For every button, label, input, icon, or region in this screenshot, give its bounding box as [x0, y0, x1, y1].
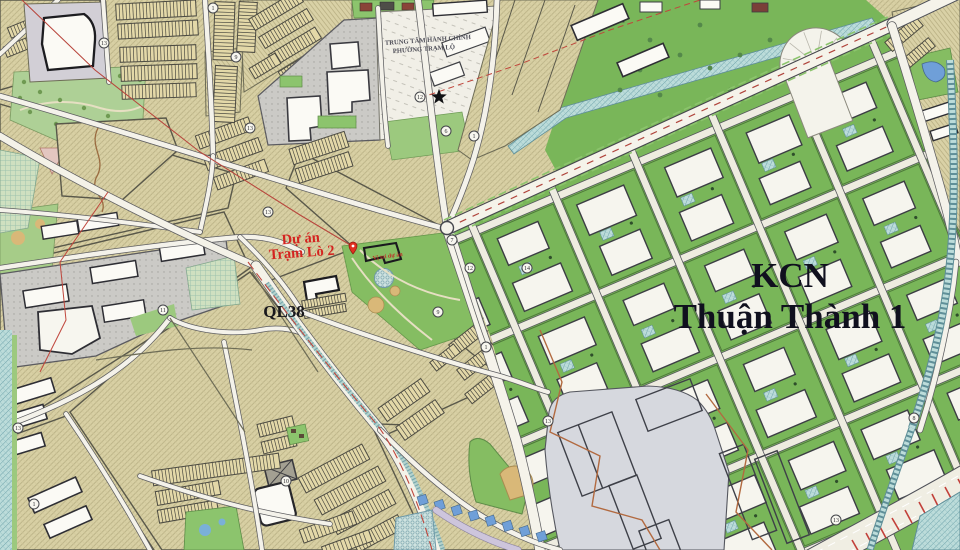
svg-text:13: 13 [545, 419, 551, 425]
svg-text:1: 1 [485, 345, 488, 351]
svg-text:9: 9 [437, 310, 440, 316]
svg-text:13: 13 [15, 426, 21, 432]
svg-text:1: 1 [33, 502, 36, 508]
svg-text:11: 11 [160, 308, 166, 314]
svg-text:13: 13 [247, 126, 253, 132]
svg-text:13: 13 [265, 210, 271, 216]
svg-text:14: 14 [524, 266, 530, 272]
svg-text:13: 13 [101, 41, 107, 47]
svg-text:9: 9 [235, 55, 238, 61]
svg-text:Thuận Thành 1: Thuận Thành 1 [674, 297, 907, 336]
svg-text:QL38: QL38 [263, 302, 305, 321]
svg-text:12: 12 [467, 266, 473, 272]
svg-text:1: 1 [212, 6, 215, 12]
svg-text:10: 10 [283, 479, 289, 485]
svg-text:8: 8 [913, 416, 916, 422]
svg-text:1: 1 [473, 134, 476, 140]
svg-text:12: 12 [417, 95, 423, 101]
svg-text:7: 7 [451, 238, 454, 244]
svg-text:KCN: KCN [751, 256, 829, 295]
svg-text:6: 6 [445, 129, 448, 135]
svg-text:13: 13 [833, 518, 839, 524]
